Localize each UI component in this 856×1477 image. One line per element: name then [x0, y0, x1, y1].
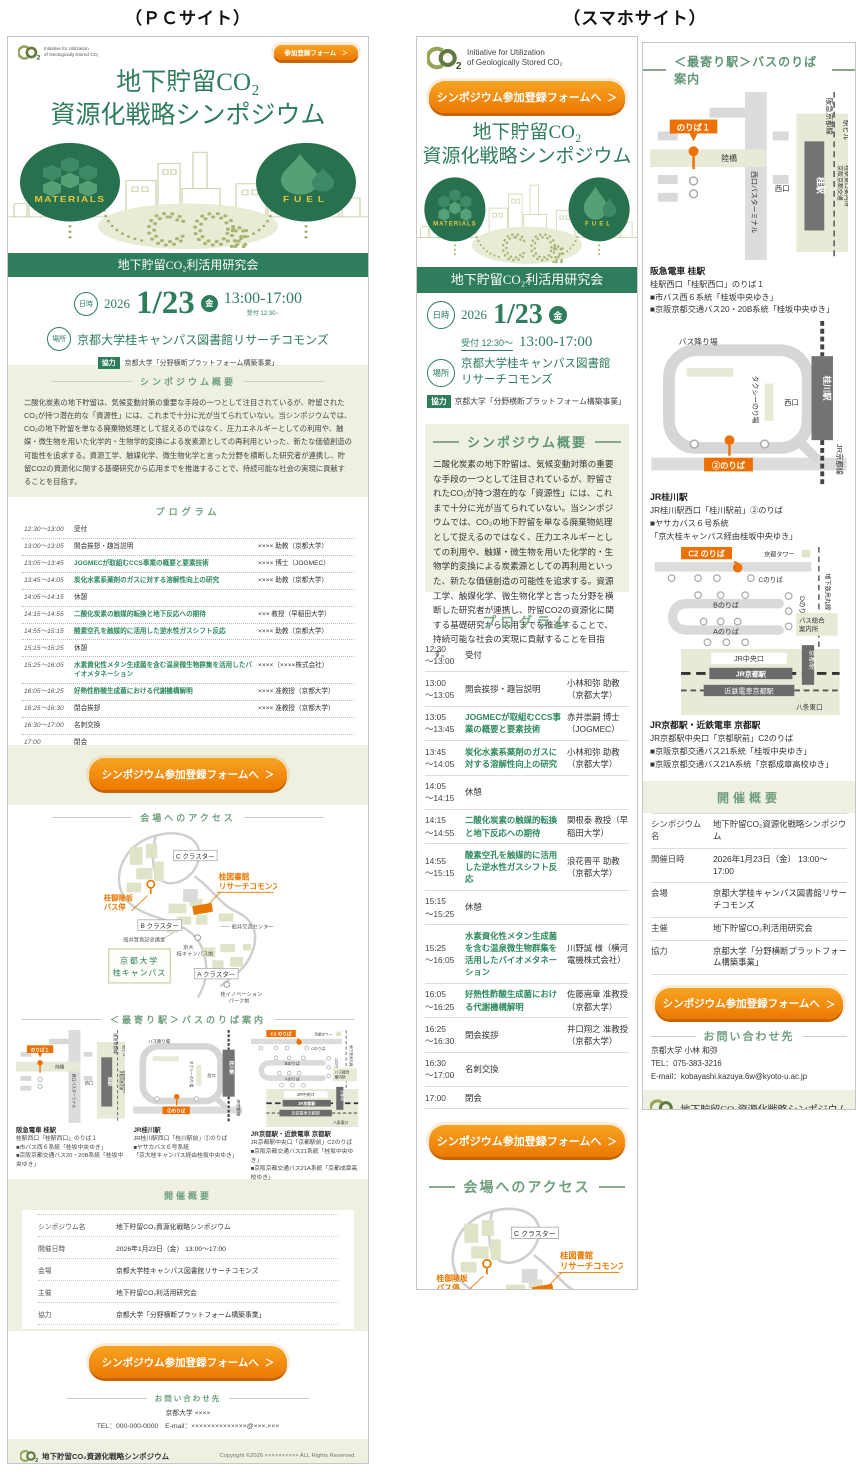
program-row: 13:00～13:05開会挨拶・趣旨説明小林和弥 助教（京都大学） — [425, 672, 629, 706]
campus-map — [90, 826, 286, 1008]
weekday-badge: 金 — [201, 295, 218, 312]
program-title: 炭化水素系薬剤のガスに対する溶解性向上の研究 — [465, 746, 563, 770]
venue-name: 京都大学桂キャンパス図書館リサーチコモンズ — [461, 357, 611, 388]
logo-text: Initiative for Utilizationof Geologicall… — [44, 46, 99, 57]
program-time: 16:30～17:00 — [24, 721, 74, 731]
symposium-title: 地下貯留CO₂資源化戦略シンポジウム — [417, 121, 637, 171]
contact-heading: お問い合わせ先 — [651, 1028, 847, 1044]
program-row: 15:25～16:05水素資化性メタン生成菌を含む温泉微生物群集を活用したバイオ… — [22, 657, 354, 683]
summary-heading: 開催概要 — [22, 1189, 354, 1202]
program-time: 12:30～13:00 — [425, 643, 461, 667]
program-title: 受付 — [74, 525, 258, 535]
program-row: 15:25～16:05水素資化性メタン生成菌を含む温泉微生物群集を活用したバイオ… — [425, 925, 629, 984]
event-date: 1/23 — [136, 285, 195, 322]
jr-kyoto-map — [650, 547, 848, 715]
program-time: 13:45～14:05 — [24, 576, 74, 586]
cta-section: シンポジウム参加登録フォームへ＞ — [643, 975, 855, 1028]
summary-table: シンポジウム名地下貯留CO₂資源化戦略シンポジウム 開催日時2026年1月23日… — [22, 1210, 354, 1329]
register-form-button[interactable]: シンポジウム参加登録フォームへ＞ — [89, 758, 287, 790]
access-section: 会場へのアクセス — [8, 805, 368, 1011]
program-time: 16:30～17:00 — [425, 1057, 461, 1081]
sp-header: Initiative for Utilizationof Geologicall… — [417, 37, 637, 79]
program-title: 受付 — [465, 649, 563, 661]
event-date: 1/23 — [493, 299, 543, 331]
program-speaker: ×××× 准教授（京都大学） — [258, 687, 352, 697]
program-time: 13:00～13:05 — [24, 542, 74, 552]
program-row: 15:15～15:25休憩 — [425, 891, 629, 925]
access-section: 会場へのアクセス — [417, 1177, 637, 1290]
contact-heading: お問い合わせ先 — [8, 1393, 368, 1404]
program-title: 二酸化炭素の触媒的転換と地下反応への期待 — [74, 610, 258, 620]
station-caption: JR桂川駅 JR桂川駅西口「桂川駅前」②のりば■ヤサカバス６号系統「京大桂キャン… — [650, 490, 848, 543]
program-row: 14:15～14:55二酸化炭素の触媒的転換と地下反応への期待関根泰 教授（早稲… — [425, 810, 629, 844]
pc-site-preview: Initiative for Utilizationof Geologicall… — [7, 36, 369, 1464]
station-block: 阪急電車 桂駅 桂駅西口「桂駅西口」のりば１■市バス西６系統「桂坂中央ゆき」■京… — [16, 1030, 125, 1183]
program-time: 14:55～15:15 — [24, 627, 74, 637]
campus-map — [423, 1201, 631, 1290]
station-block: 阪急電車 桂駅 桂駅西口「桂駅西口」のりば１■市バス西６系統「桂坂中央ゆき」■京… — [643, 91, 855, 321]
overview-section: シンポジウム概要 二酸化炭素の地下貯留は、気候変動対策の重要な手段の一つとして注… — [8, 365, 368, 497]
station-block: JR京都駅・近鉄電車 京都駅 JR京都駅中央口「京都駅前」C2のりば■京阪京都交… — [251, 1030, 360, 1183]
access-heading: 会場へのアクセス — [417, 1177, 637, 1197]
station-caption: JR京都駅・近鉄電車 京都駅 JR京都駅中央口「京都駅前」C2のりば■京阪京都交… — [251, 1129, 360, 1182]
arrow-icon: ＞ — [826, 997, 835, 1011]
program-time: 16:05～16:25 — [24, 687, 74, 697]
program-title: 炭化水素系薬剤のガスに対する溶解性向上の研究 — [74, 576, 258, 586]
program-row: 17:00閉会 — [425, 1087, 629, 1109]
organizer-banner: 地下貯留CO₂利活用研究会 — [417, 267, 637, 293]
copyright: Copyright ©2026 ×××××××××× ALL Rights Re… — [219, 1453, 356, 1459]
program-speaker: 川野誠 様（横河電機株式会社） — [567, 942, 629, 966]
date-venue-block: 日時 2026 1/23 金 受付 12:30～ 13:00-17:00 場所 … — [417, 293, 637, 414]
summary-row: 協力京都大学「分野横断プラットフォーム構築事業」 — [651, 941, 847, 976]
co2-logo-icon — [20, 1449, 38, 1463]
program-time: 12:30～13:00 — [24, 525, 74, 535]
program-row: 13:45～14:05炭化水素系薬剤のガスに対する溶解性向上の研究×××× 助教… — [22, 573, 354, 590]
station-caption: JR桂川駅 JR桂川駅西口「桂川駅前」②のりば■ヤサカバス６号系統「京大桂キャン… — [133, 1125, 242, 1161]
program-title: 好熱性酢酸生成菌における代謝機構解明 — [74, 687, 258, 697]
program-row: 14:55～15:15酸素空孔を触媒的に活用した逆水性ガスシフト反応×××× 助… — [22, 624, 354, 641]
overview-heading: シンポジウム概要 — [433, 432, 621, 451]
summary-table: シンポジウム名地下貯留CO₂資源化戦略シンポジウム 開催日時2026年1月23日… — [643, 813, 855, 975]
summary-row: 会場京都大学桂キャンパス図書館リサーチコモンズ — [651, 883, 847, 918]
program-title: 閉会挨拶 — [465, 1029, 563, 1041]
program-time: 15:15～15:25 — [425, 895, 461, 919]
program-title: 休憩 — [74, 644, 258, 654]
program-speaker: ××××（××××株式会社） — [258, 661, 352, 671]
cta-section: シンポジウム参加登録フォームへ＞ — [8, 745, 368, 805]
program-title: 名刺交換 — [465, 1063, 563, 1075]
program-title: JOGMECが取組むCCS事業の概要と要素技術 — [465, 711, 563, 735]
program-row: 14:15～14:55二酸化炭素の触媒的転換と地下反応への期待××× 教授（早稲… — [22, 607, 354, 624]
arrow-icon: ＞ — [607, 1134, 617, 1148]
program-row: 16:05～16:25好熱性酢酸生成菌における代謝機構解明佐藤嵩章 准教授（京都… — [425, 984, 629, 1018]
program-time: 16:25～16:30 — [425, 1023, 461, 1047]
register-form-button[interactable]: 参加登録フォーム＞ — [274, 45, 358, 60]
program-speaker: 赤井崇嗣 博士（JOGMEC） — [567, 711, 629, 735]
register-form-button[interactable]: シンポジウム参加登録フォームへ＞ — [429, 1125, 625, 1157]
contact-section: お問い合わせ先 京都大学 ×××× TEL：000-000-0000 E-mai… — [8, 1393, 368, 1439]
footer: 地下貯留CO₂資源化戦略シンポジウム Copyright ©2026 ×××××… — [8, 1439, 368, 1464]
program-title: 休憩 — [465, 901, 563, 913]
footer-site-name[interactable]: 地下貯留CO₂資源化戦略シンポジウム — [20, 1449, 169, 1463]
contact-name: 京都大学 ×××× — [8, 1407, 368, 1417]
symposium-title: 地下貯留CO₂資源化戦略シンポジウム — [8, 67, 368, 135]
station-block: JR京都駅・近鉄電車 京都駅 JR京都駅中央口「京都駅前」C2のりば■京阪京都交… — [643, 547, 855, 775]
place-badge: 場所 — [47, 327, 71, 351]
program-time: 14:05～14:15 — [24, 593, 74, 603]
program-time: 15:15～15:25 — [24, 644, 74, 654]
program-row: 16:30～17:00名刺交換 — [425, 1053, 629, 1087]
register-form-button[interactable]: シンポジウム参加登録フォームへ＞ — [89, 1346, 287, 1378]
station-block: JR桂川駅 JR桂川駅西口「桂川駅前」②のりば■ヤサカバス６号系統「京大桂キャン… — [133, 1030, 242, 1183]
support-text: 京都大学「分野横断プラットフォーム構築事業」 — [125, 358, 279, 368]
site-logo[interactable]: Initiative for Utilizationof Geologicall… — [18, 44, 99, 61]
program-title: 水素資化性メタン生成菌を含む温泉微生物群集を活用したバイオメタネーション — [465, 930, 563, 979]
program-row: 13:05～13:45JOGMECが取組むCCS事業の概要と要素技術赤井崇嗣 博… — [425, 707, 629, 741]
program-section: プログラム 12:30～13:00受付 13:00～13:05開会挨拶・趣旨説明… — [417, 602, 637, 1111]
program-time: 14:15～14:55 — [425, 814, 461, 838]
arrow-icon: ＞ — [265, 767, 274, 781]
summary-row: 開催日時2026年1月23日（金） 13:00～17:00 — [38, 1237, 338, 1259]
sp-site-preview-2: ＜最寄り駅＞バスのりば案内 阪急電車 桂駅 桂駅西口「桂駅西口」のりば１■市バス… — [642, 42, 856, 1110]
cta-section: シンポジウム参加登録フォームへ＞ — [8, 1331, 368, 1393]
station-block: JR桂川駅 JR桂川駅西口「桂川駅前」②のりば■ヤサカバス６号系統「京大桂キャン… — [643, 321, 855, 547]
program-time: 14:55～15:15 — [425, 855, 461, 879]
footer: 地下貯留CO₂資源化戦略シンポジウム Copyright ©2026 Kobay… — [643, 1090, 855, 1110]
support-badge: 協力 — [427, 395, 451, 408]
program-row: 14:05～14:15休憩 — [22, 590, 354, 607]
summary-row: 協力京都大学「分野横断プラットフォーム構築事業」 — [38, 1303, 338, 1325]
summary-row: 開催日時2026年1月23日（金） 13:00～17:00 — [651, 849, 847, 884]
summary-row: シンポジウム名地下貯留CO₂資源化戦略シンポジウム — [38, 1214, 338, 1237]
datetime-badge: 日時 — [74, 292, 98, 316]
overview-heading: シンポジウム概要 — [24, 375, 352, 388]
program-speaker: 関根泰 教授（早稲田大学） — [567, 814, 629, 838]
arrow-icon: ＞ — [342, 48, 348, 57]
program-time: 17:00 — [425, 1092, 461, 1104]
program-title: JOGMECが取組むCCS事業の概要と要素技術 — [74, 559, 258, 569]
summary-row: シンポジウム名地下貯留CO₂資源化戦略シンポジウム — [651, 813, 847, 849]
place-badge: 場所 — [427, 359, 455, 387]
program-row: 13:05～13:45JOGMECが取組むCCS事業の概要と要素技術×××× 博… — [22, 556, 354, 573]
co2-logo-icon — [650, 1098, 676, 1110]
station-caption: 阪急電車 桂駅 桂駅西口「桂駅西口」のりば１■市バス西６系統「桂坂中央ゆき」■京… — [16, 1125, 125, 1170]
program-speaker: 佐藤嵩章 准教授（京都大学） — [567, 988, 629, 1012]
program-row: 13:45～14:05炭化水素系薬剤のガスに対する溶解性向上の研究小林和弥 助教… — [425, 741, 629, 775]
program-row: 13:00～13:05開会挨拶・趣旨説明×××× 助教（京都大学） — [22, 539, 354, 556]
program-title: 二酸化炭素の触媒的転換と地下反応への期待 — [465, 814, 563, 838]
reception-time: 受付 12:30～ — [461, 336, 513, 351]
program-time: 16:05～16:25 — [425, 988, 461, 1012]
contact-tel-mail: TEL：000-000-0000 E-mail：××××××××××××××@×… — [8, 1420, 368, 1430]
program-title: 名刺交換 — [74, 721, 258, 731]
program-title: 開会挨拶・趣旨説明 — [74, 542, 258, 552]
date-venue-block: 日時 2026 1/23 金 13:00-17:00 受付 12:30− 場所 … — [8, 277, 368, 365]
arrow-icon: ＞ — [265, 1355, 274, 1369]
program-time: 13:05～13:45 — [24, 559, 74, 569]
summary-row: 主催地下貯留CO₂利活用研究会 — [38, 1281, 338, 1303]
hero-illustration — [417, 171, 637, 267]
summary-heading: 開催概要 — [643, 781, 855, 813]
event-time: 13:00-17:00 — [519, 334, 592, 351]
sp-site-preview: Initiative for Utilizationof Geologicall… — [416, 36, 638, 1290]
program-title: 閉会 — [465, 1092, 563, 1104]
program-time: 15:25～16:05 — [24, 661, 74, 671]
program-speaker: ×××× 助教（京都大学） — [258, 576, 352, 586]
station-caption: 阪急電車 桂駅 桂駅西口「桂駅西口」のりば１■市バス西６系統「桂坂中央ゆき」■京… — [650, 264, 848, 317]
program-speaker: 小林和弥 助教（京都大学） — [567, 677, 629, 701]
summary-row: 主催地下貯留CO₂利活用研究会 — [651, 918, 847, 941]
co2-logo-icon — [427, 45, 461, 71]
program-title: 閉会挨拶 — [74, 704, 258, 714]
co2-logo-icon — [18, 44, 40, 61]
program-row: 12:30～13:00受付 — [22, 522, 354, 539]
program-row: 16:05～16:25好熱性酢酸生成菌における代謝機構解明×××× 准教授（京都… — [22, 684, 354, 701]
register-form-button[interactable]: シンポジウム参加登録フォームへ＞ — [429, 81, 625, 113]
program-time: 13:00～13:05 — [425, 677, 461, 701]
program-speaker: ××× 教授（早稲田大学） — [258, 610, 352, 620]
program-heading: プログラム — [22, 505, 354, 518]
program-row: 16:30～17:00名刺交換 — [22, 718, 354, 735]
program-time: 14:15～14:55 — [24, 610, 74, 620]
station-caption: JR京都駅・近鉄電車 京都駅 JR京都駅中央口「京都駅前」C2のりば■京阪京都交… — [650, 718, 848, 771]
hero-illustration — [8, 135, 368, 253]
contact-section: お問い合わせ先 京都大学 小林 和弥 TEL：075-383-3216 E-ma… — [643, 1028, 855, 1083]
support-badge: 協力 — [98, 357, 120, 369]
logo-text: Initiative for Utilizationof Geologicall… — [467, 48, 563, 69]
program-time: 15:25～16:05 — [425, 942, 461, 966]
footer-site-name[interactable]: 地下貯留CO₂資源化戦略シンポジウム — [649, 1098, 849, 1110]
program-title: 休憩 — [465, 786, 563, 798]
program-title: 開会挨拶・趣旨説明 — [465, 683, 563, 695]
overview-section: シンポジウム概要 二酸化炭素の地下貯留は、気候変動対策の重要な手段の一つとして注… — [425, 424, 629, 592]
hankyu-katsura-map — [650, 91, 848, 261]
program-speaker: ×××× 助教（京都大学） — [258, 627, 352, 637]
program-title: 休憩 — [74, 593, 258, 603]
program-row: 16:25～16:30閉会挨拶×××× 准教授（京都大学） — [22, 701, 354, 718]
organizer-banner: 地下貯留CO₂利活用研究会 — [8, 253, 368, 277]
program-title: 閉会 — [74, 738, 258, 748]
program-time: 13:45～14:05 — [425, 746, 461, 770]
program-title: 水素資化性メタン生成菌を含む温泉微生物群集を活用したバイオメタネーション — [74, 661, 258, 680]
event-time: 13:00-17:00 — [224, 290, 302, 307]
datetime-badge: 日時 — [427, 301, 455, 329]
weekday-badge: 金 — [549, 306, 567, 324]
jr-katsuragawa-map — [650, 321, 848, 487]
program-row: 14:05～14:15休憩 — [425, 776, 629, 810]
venue-name: 京都大学桂キャンパス図書館リサーチコモンズ — [77, 331, 329, 348]
stations-section: ＜最寄り駅＞バスのりば案内 阪急電車 桂駅 桂駅西口「桂駅西口」のりば１■市バス… — [8, 1011, 368, 1179]
program-time: 17:00 — [24, 738, 74, 748]
event-year: 2026 — [104, 296, 130, 312]
summary-row: 会場京都大学桂キャンパス図書館リサーチコモンズ — [38, 1259, 338, 1281]
program-time: 16:25～16:30 — [24, 704, 74, 714]
program-section: プログラム 12:30～13:00受付 13:00～13:05開会挨拶・趣旨説明… — [8, 497, 368, 745]
event-year: 2026 — [461, 307, 487, 323]
program-title: 酸素空孔を触媒的に活用した逆水性ガスシフト反応 — [465, 849, 563, 886]
summary-section: 開催概要 シンポジウム名地下貯留CO₂資源化戦略シンポジウム 開催日時2026年… — [8, 1179, 368, 1331]
pc-header: Initiative for Utilizationof Geologicall… — [8, 37, 368, 67]
contact-name: 京都大学 小林 和弥 — [651, 1045, 847, 1057]
support-text: 京都大学「分野横断プラットフォーム構築事業」 — [455, 396, 626, 407]
sp-site-label: （スマホサイト） — [520, 4, 750, 29]
stations-heading: ＜最寄り駅＞バスのりば案内 — [16, 1013, 360, 1026]
program-speaker: 浪花晋平 助教（京都大学） — [567, 855, 629, 879]
program-row: 16:25～16:30閉会挨拶井口翔之 准教授（京都大学） — [425, 1018, 629, 1052]
arrow-icon: ＞ — [607, 90, 617, 104]
register-form-button[interactable]: シンポジウム参加登録フォームへ＞ — [655, 988, 843, 1019]
contact-tel: TEL：075-383-3216 — [651, 1058, 847, 1070]
program-speaker: 小林和弥 助教（京都大学） — [567, 746, 629, 770]
contact-mail[interactable]: E-mail：kobayashi.kazuya.6w@kyoto-u.ac.jp — [651, 1071, 847, 1083]
program-time: 13:05～13:45 — [425, 711, 461, 735]
stations-heading: ＜最寄り駅＞バスのりば案内 — [643, 53, 855, 87]
reception-time: 受付 12:30− — [224, 308, 302, 317]
jr-kyoto-map — [251, 1030, 360, 1127]
program-title: 好熱性酢酸生成菌における代謝機構解明 — [465, 988, 563, 1012]
program-speaker: ×××× 博士（JOGMEC） — [258, 559, 352, 569]
program-speaker: ×××× 准教授（京都大学） — [258, 704, 352, 714]
jr-katsuragawa-map — [133, 1030, 242, 1123]
program-speaker: ×××× 助教（京都大学） — [258, 542, 352, 552]
hankyu-katsura-map — [16, 1030, 125, 1123]
access-heading: 会場へのアクセス — [18, 811, 358, 824]
program-row: 15:15～15:25休憩 — [22, 640, 354, 657]
program-speaker: 井口翔之 准教授（京都大学） — [567, 1023, 629, 1047]
program-time: 14:05～14:15 — [425, 780, 461, 804]
cta-section: シンポジウム参加登録フォームへ＞ — [417, 1111, 637, 1167]
program-row: 14:55～15:15酸素空孔を触媒的に活用した逆水性ガスシフト反応浪花晋平 助… — [425, 844, 629, 891]
overview-body: 二酸化炭素の地下貯留は、気候変動対策の重要な手段の一つとして注目されているが、貯… — [24, 396, 352, 488]
program-title: 酸素空孔を触媒的に活用した逆水性ガスシフト反応 — [74, 627, 258, 637]
pc-site-label: （ＰＣサイト） — [88, 4, 288, 29]
